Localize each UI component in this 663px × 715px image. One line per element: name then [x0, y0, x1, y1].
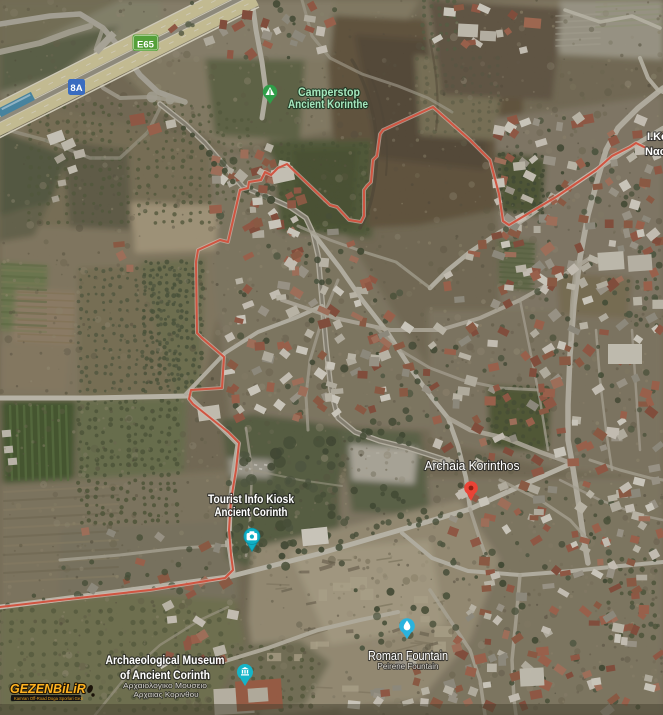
svg-text:Αρχαιολογικο Μουσειο: Αρχαιολογικο Μουσειο [123, 681, 207, 690]
svg-text:I.Ko: I.Ko [647, 131, 663, 143]
svg-text:Αρχαιας Κορινθου: Αρχαιας Κορινθου [134, 690, 199, 699]
svg-text:Camperstop: Camperstop [298, 87, 360, 99]
svg-text:Peirene Fountain: Peirene Fountain [378, 662, 439, 671]
svg-text:E65: E65 [137, 40, 155, 51]
svg-text:Kamran Off-Road Doga Sporlar: Kamran Off-Road Doga Sporlari Gezi [14, 696, 83, 701]
svg-text:Ancient Corinth: Ancient Corinth [215, 505, 288, 519]
svg-text:Roman Fountain: Roman Fountain [368, 649, 448, 663]
svg-text:Archaia Korinthos: Archaia Korinthos [425, 459, 520, 473]
svg-text:Archaeological Museum: Archaeological Museum [106, 653, 225, 667]
svg-text:8A: 8A [70, 83, 82, 94]
svg-text:Ancient Korinthe: Ancient Korinthe [288, 99, 368, 111]
svg-text:Ναο: Ναο [645, 146, 663, 158]
svg-text:GEZENBiLiR: GEZENBiLiR [10, 682, 86, 696]
svg-text:of Ancient Corinth: of Ancient Corinth [120, 668, 210, 682]
svg-text:Tourist Info Kiosk: Tourist Info Kiosk [208, 492, 294, 506]
